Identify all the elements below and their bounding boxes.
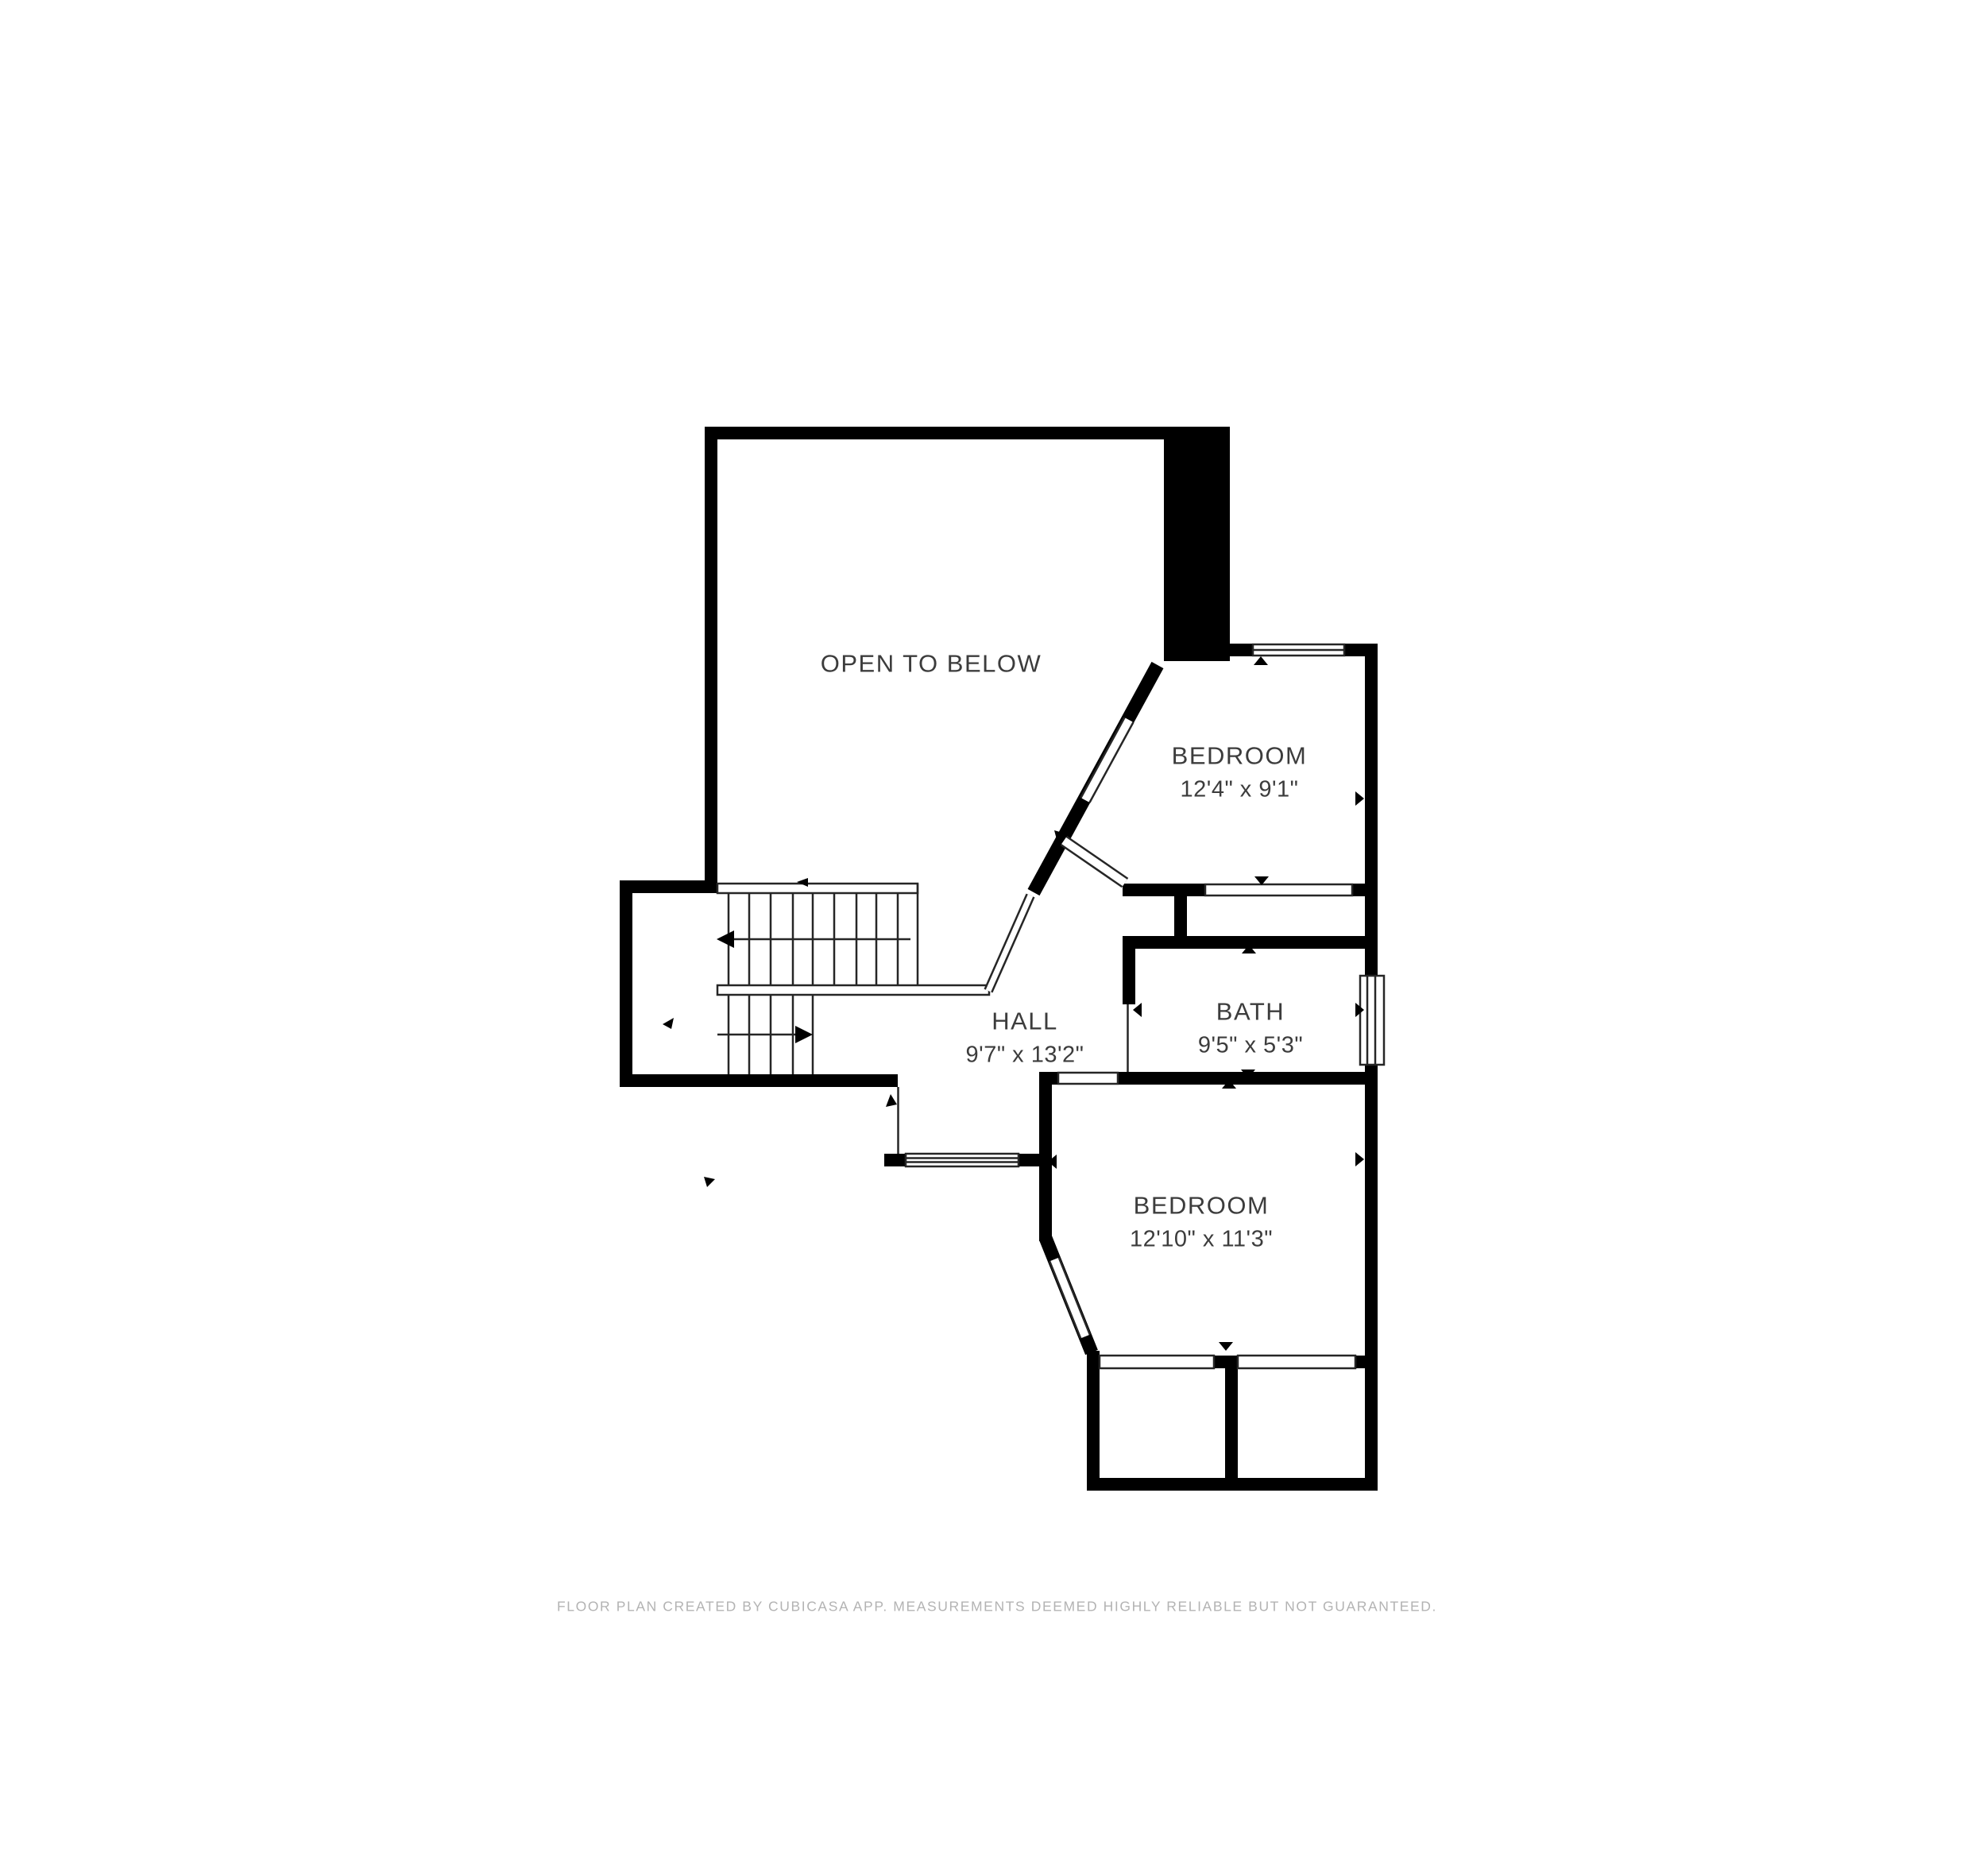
window-bath-east <box>1360 976 1384 1065</box>
opening-bed2-door <box>1058 1073 1118 1084</box>
wall-closet-band-right-stub <box>1355 1356 1365 1368</box>
room-dimensions: 9'5" x 5'3" <box>1198 1032 1303 1060</box>
wall-bed1-bottom-corner <box>1352 884 1378 896</box>
room-label-hall: HALL 9'7" x 13'2" <box>966 1007 1084 1070</box>
wall-closet-divider <box>1225 1368 1238 1478</box>
wall-bed1-top-left <box>1230 644 1253 656</box>
canvas-background <box>0 0 1983 1876</box>
wall-alcove-left <box>620 893 632 1087</box>
wall-closet-strip-stub <box>1174 896 1187 936</box>
wall-bed2-door-stub <box>1039 1072 1058 1085</box>
wall-hall-bottom <box>620 1074 898 1087</box>
footer-disclaimer: FLOOR PLAN CREATED BY CUBICASA APP. MEAS… <box>557 1599 1437 1615</box>
room-name: OPEN TO BELOW <box>821 648 1042 678</box>
wall-alcove-top <box>620 880 717 893</box>
floor-plan-drawing <box>0 0 1983 1876</box>
wall-closet-band-center <box>1214 1356 1238 1368</box>
stairs-top-edge-band <box>717 884 918 893</box>
wall-right-upper <box>1365 644 1378 976</box>
wall-bath-bottom <box>1118 1072 1365 1085</box>
wall-block-chimney <box>1164 427 1230 661</box>
window-hall <box>906 1154 1019 1166</box>
floor-plan-page: { "plan": { "type": "floor-plan", "rooms… <box>0 0 1983 1876</box>
wall-left <box>705 439 717 893</box>
wall-bed1-bottom <box>1123 884 1205 896</box>
room-name: BEDROOM <box>1172 741 1308 771</box>
room-label-bedroom-top: BEDROOM 12'4" x 9'1" <box>1172 741 1308 804</box>
wall-bottom <box>1087 1478 1378 1491</box>
room-name: BEDROOM <box>1130 1191 1273 1220</box>
wall-hall-window-stub-right <box>1019 1154 1039 1166</box>
wall-bath-left <box>1123 949 1135 1004</box>
room-dimensions: 9'7" x 13'2" <box>966 1042 1084 1070</box>
stairs-landing-railing <box>717 985 989 995</box>
wall-right-lower <box>1365 1065 1378 1491</box>
opening-closet-right <box>1238 1356 1355 1368</box>
room-label-bath: BATH 9'5" x 5'3" <box>1198 997 1303 1060</box>
room-dimensions: 12'4" x 9'1" <box>1172 776 1308 804</box>
room-dimensions: 12'10" x 11'3" <box>1130 1226 1273 1254</box>
opening-bed1-closet <box>1205 884 1352 895</box>
wall-closet-left <box>1087 1351 1100 1491</box>
room-label-open-to-below: OPEN TO BELOW <box>821 648 1042 678</box>
wall-bath-top <box>1123 936 1365 949</box>
wall-top <box>705 427 1230 439</box>
room-name: HALL <box>966 1007 1084 1036</box>
opening-closet-left <box>1100 1356 1214 1368</box>
room-label-bedroom-bottom: BEDROOM 12'10" x 11'3" <box>1130 1191 1273 1254</box>
wall-hall-window-stub-left <box>884 1154 906 1166</box>
room-name: BATH <box>1198 997 1303 1027</box>
